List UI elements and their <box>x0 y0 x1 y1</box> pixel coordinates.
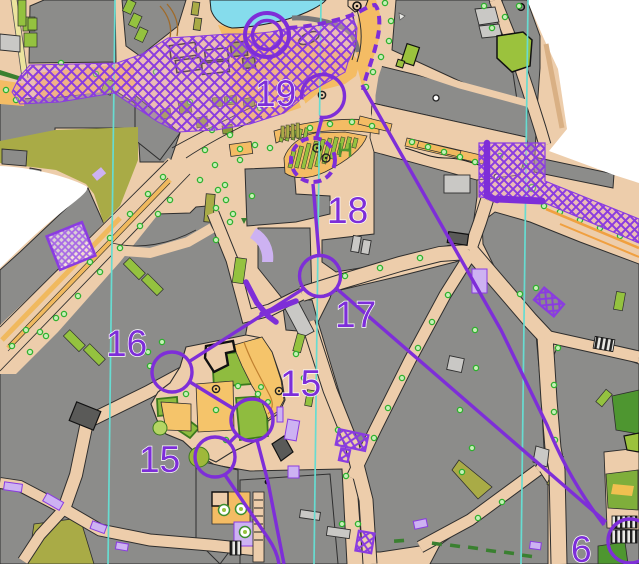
svg-text:19: 19 <box>255 73 296 114</box>
svg-text:17: 17 <box>335 294 376 335</box>
svg-text:18: 18 <box>327 190 368 231</box>
svg-text:16: 16 <box>106 323 147 364</box>
svg-text:6: 6 <box>571 529 592 564</box>
svg-text:15: 15 <box>139 439 180 480</box>
svg-text:15: 15 <box>280 363 321 404</box>
